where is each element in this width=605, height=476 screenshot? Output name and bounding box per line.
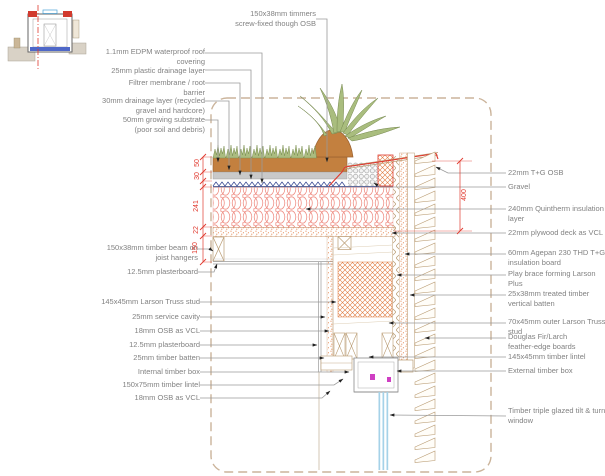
label-timber-lintel-ext: 145x45mm timber lintel [508,352,605,362]
external-timber-box [396,360,413,372]
construction-detail-drawing: 150x38mm timmers screw-fixed though OSB … [0,0,605,476]
label-quintherm: 240mm Quintherm insulation layer [508,204,605,223]
dimension-wall-400: 400 [461,185,469,205]
plywood-deck-vcl [213,228,395,237]
label-timber-batten: 25mm timber batten [133,353,200,363]
label-agepan: 60mm Agepan 230 THD T+G insulation board [508,248,605,267]
key-plan-thumbnail [8,5,86,70]
label-larson-truss-stud: 145x45mm Larson Truss stud [101,297,200,307]
dimension-insulation-241: 241 [193,196,201,216]
label-epdm-covering: 1.1mm EDPM waterproof roof covering [106,47,205,66]
label-vertical-batten: 25x38mm treated timber vertical batten [508,289,605,308]
label-parapet-timbers: 150x38mm timmers screw-fixed though OSB [235,9,316,28]
vertical-batten-zone [408,153,415,368]
dimension-joist-150: 150 [192,238,200,258]
quintherm-insulation-layer [213,188,393,228]
label-service-cavity: 25mm service cavity [132,312,200,322]
detail-graphics [0,0,605,476]
window-assembly [319,356,413,470]
label-plywood-deck: 22mm plywood deck as VCL [508,228,605,238]
label-timber-beam: 150x38mm timber beam on joist hangers [107,243,198,262]
label-tg-osb: 22mm T+G OSB [508,168,605,178]
window-gasket [387,377,391,382]
label-plasterboard-ceiling: 12.5mm plasterboard [127,267,198,277]
label-feather-edge: Douglas Fir/Larch feather-edge boards [508,332,605,351]
label-external-timber-box: External timber box [508,366,605,376]
agepan-insulation-board [400,153,408,368]
label-drainage-layer: 30mm drainage layer (recycled gravel and… [102,96,205,115]
label-growing-substrate: 50mm growing substrate (poor soil and de… [123,115,205,134]
window-frame [354,358,398,392]
feather-edge-cladding [415,152,435,463]
label-osb-vcl-wall: 18mm OSB as VCL [135,326,200,336]
ply-brace-zigzag [393,156,399,368]
label-play-brace: Play brace forming Larson Plus [508,269,605,288]
osb-vcl-band [327,236,333,372]
dimension-deck-22: 22 [193,223,201,237]
ceiling-plasterboard [213,259,333,264]
label-plastic-drainage: 25mm plastic drainage layer [111,66,205,76]
plant-vegetation [298,84,400,141]
timber-lintel-studs [334,333,393,359]
triple-glazing [379,392,389,470]
label-internal-timber-box: Internal timber box [138,367,200,377]
label-osb-vcl-head: 18mm OSB as VCL [135,393,200,403]
label-plasterboard-wall: 12.5mm plasterboard [129,340,200,350]
label-timber-lintel-int: 150x75mm timber lintel [122,380,200,390]
label-window: Timber triple glazed tilt & turn window [508,406,605,425]
dimension-substrate-50: 50 [194,156,202,170]
lintel-zone-insulation [338,262,392,317]
green-roof-layers [213,84,400,264]
label-filter-membrane: Filtrer membrane / root barrier [129,78,205,97]
dimension-drainage-30: 30 [194,169,202,183]
label-gravel: Gravel [508,182,605,192]
grass-tufts [213,145,317,158]
window-gasket [370,374,375,380]
